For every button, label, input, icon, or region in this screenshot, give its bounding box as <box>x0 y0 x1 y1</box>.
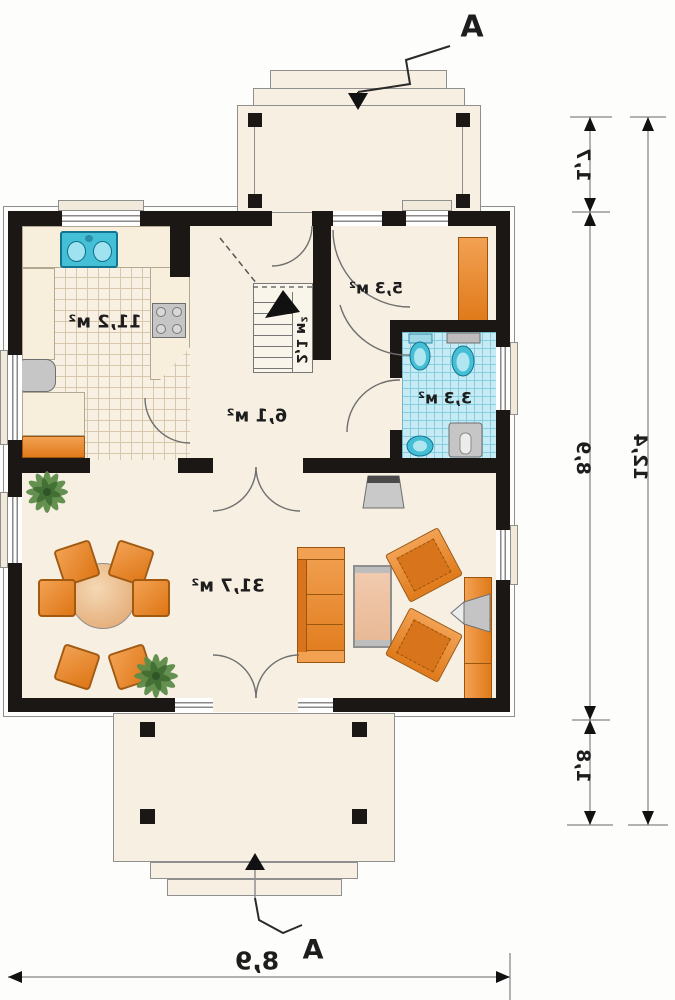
window <box>406 211 448 226</box>
dining-chair <box>38 579 76 617</box>
armchair-seat <box>396 619 451 672</box>
wall-living <box>178 458 213 473</box>
window <box>8 355 22 440</box>
section-letter-top: A <box>460 10 483 45</box>
room-label-bathroom: 3,3 м² <box>418 389 472 408</box>
window-sill <box>0 492 8 568</box>
window <box>496 347 510 410</box>
sink-basin <box>67 241 86 262</box>
porch-column <box>248 194 262 208</box>
fridge <box>20 359 56 392</box>
kitchen-cabinet <box>22 436 85 458</box>
tv-cabinet <box>464 577 492 707</box>
sink-basin <box>93 241 112 262</box>
stove-burner <box>156 307 166 317</box>
room-label-kitchen: 11,2 м² <box>68 312 141 333</box>
sofa-cushion-line <box>307 594 343 595</box>
wall-left <box>8 211 22 355</box>
stove-burner <box>156 324 166 334</box>
coffee-table-edge <box>355 567 390 573</box>
wall-top <box>382 211 406 226</box>
armchair-seat <box>397 538 452 591</box>
wall-kitchen <box>170 226 190 277</box>
dimension-house-depth: 8,9 <box>572 441 594 475</box>
room-label-bedroom: 5,3 м² <box>349 279 403 298</box>
terrace-step-upper <box>150 862 358 879</box>
wall-left <box>8 563 22 698</box>
window <box>8 497 22 563</box>
dining-chair <box>132 579 170 617</box>
window <box>175 698 213 712</box>
stove-burner <box>172 324 182 334</box>
window-sill <box>58 200 144 211</box>
dimension-total-depth: 12,4 <box>629 434 651 481</box>
sofa-armrest <box>298 548 344 560</box>
window <box>496 530 510 580</box>
wall-living <box>8 458 90 473</box>
window-sill <box>0 350 8 445</box>
sofa-cushion-line <box>307 624 343 625</box>
room-label-hall: 6,1 м² <box>227 406 288 427</box>
coffee-table <box>353 565 392 648</box>
dimension-porch-depth: 1,7 <box>572 148 594 182</box>
window-sill <box>510 525 518 585</box>
wall-bottom <box>333 698 510 712</box>
wall-bathroom <box>390 320 402 378</box>
wall-top <box>140 211 272 226</box>
dimension-house-width: 8,9 <box>235 947 279 976</box>
section-letter-bottom: A <box>303 935 324 966</box>
terrace-column <box>140 722 155 737</box>
porch-step-upper <box>270 70 447 89</box>
stove-burner <box>172 307 182 317</box>
sofa-backrest <box>298 560 307 652</box>
kitchen-sink <box>60 231 118 268</box>
porch-column <box>248 113 262 127</box>
porch <box>237 105 481 213</box>
sofa <box>297 547 345 663</box>
window <box>298 698 333 712</box>
terrace-column <box>352 722 367 737</box>
room-label-living: 31,7 м² <box>191 576 264 597</box>
floor-plan: 11,2 м² 5,3 м² 2,1 м² 6,1 м² 3,3 м² 31,7… <box>0 0 675 1000</box>
kitchen-counter-left <box>22 268 55 360</box>
wall-bottom <box>8 698 175 712</box>
porch-rail <box>462 127 463 194</box>
terrace-step-lower <box>167 879 342 896</box>
porch-column <box>456 113 470 127</box>
wall-bathroom <box>402 320 496 332</box>
window <box>62 211 140 226</box>
porch-rail <box>254 127 255 194</box>
window-sill <box>510 342 518 415</box>
wall-living <box>303 458 510 473</box>
porch-step-lower <box>253 88 465 106</box>
room-label-stairs: 2,1 м² <box>293 316 309 363</box>
sink-faucet <box>85 235 93 242</box>
window <box>333 211 382 226</box>
terrace-column <box>352 809 367 824</box>
wall-right <box>496 211 510 347</box>
wall-stairs <box>313 226 331 360</box>
stair-treads <box>254 292 293 373</box>
porch-column <box>456 194 470 208</box>
wardrobe <box>458 237 488 322</box>
stove <box>152 303 186 338</box>
window-sill <box>402 200 452 211</box>
wall-top <box>312 211 333 226</box>
wall-right <box>496 580 510 698</box>
kitchen-counter-lower <box>22 392 85 436</box>
coffee-table-edge <box>355 640 390 646</box>
dimension-terrace-depth: 1,8 <box>572 749 594 783</box>
terrace-column <box>140 809 155 824</box>
